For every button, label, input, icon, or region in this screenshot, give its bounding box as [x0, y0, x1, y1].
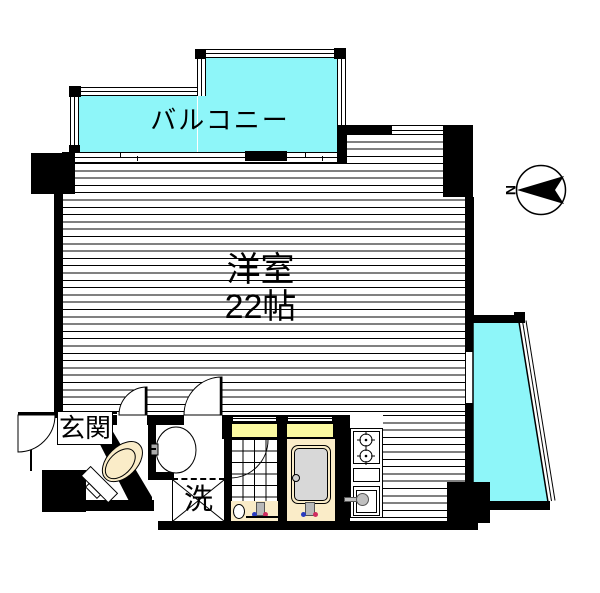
toilet-door-swing — [119, 387, 147, 415]
shower-door-swing — [230, 440, 268, 478]
compass: N — [503, 166, 566, 215]
wall-balcony-right-top — [465, 315, 520, 323]
wall-balcony-right-bottom — [486, 501, 550, 510]
overlay-graphics: N — [0, 0, 600, 593]
laundry-label: 洗 — [172, 482, 225, 520]
washroom-door-swing — [184, 377, 222, 415]
washbasin-icon — [156, 427, 196, 473]
compass-north-label: N — [503, 185, 519, 195]
entrance-label-box: 玄関 — [57, 411, 113, 445]
entrance-door-swing — [18, 415, 55, 452]
floorplan: バルコニー 洋室 22帖 バルコニー 玄関 洗 — [0, 0, 600, 593]
pillar-bottom-right — [447, 482, 490, 523]
burner-icon — [357, 431, 375, 449]
burner-icon — [357, 447, 375, 465]
